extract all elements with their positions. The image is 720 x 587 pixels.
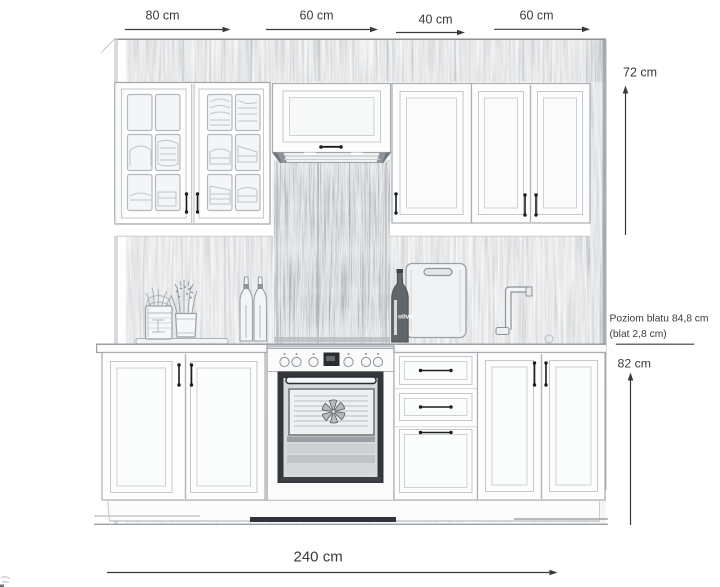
svg-text:240 cm: 240 cm	[294, 549, 343, 566]
svg-text:60 cm: 60 cm	[300, 9, 334, 23]
svg-text:40 cm: 40 cm	[419, 13, 453, 27]
svg-text:60 cm: 60 cm	[520, 9, 554, 23]
svg-text:oliva: oliva	[398, 314, 413, 321]
svg-text:80 cm: 80 cm	[146, 9, 180, 23]
svg-text:Poziom blatu 84,8 cm: Poziom blatu 84,8 cm	[610, 314, 709, 325]
svg-text:72 cm: 72 cm	[623, 66, 657, 80]
svg-text:82 cm: 82 cm	[618, 357, 652, 371]
svg-text:(blat 2,8 cm): (blat 2,8 cm)	[610, 329, 667, 340]
